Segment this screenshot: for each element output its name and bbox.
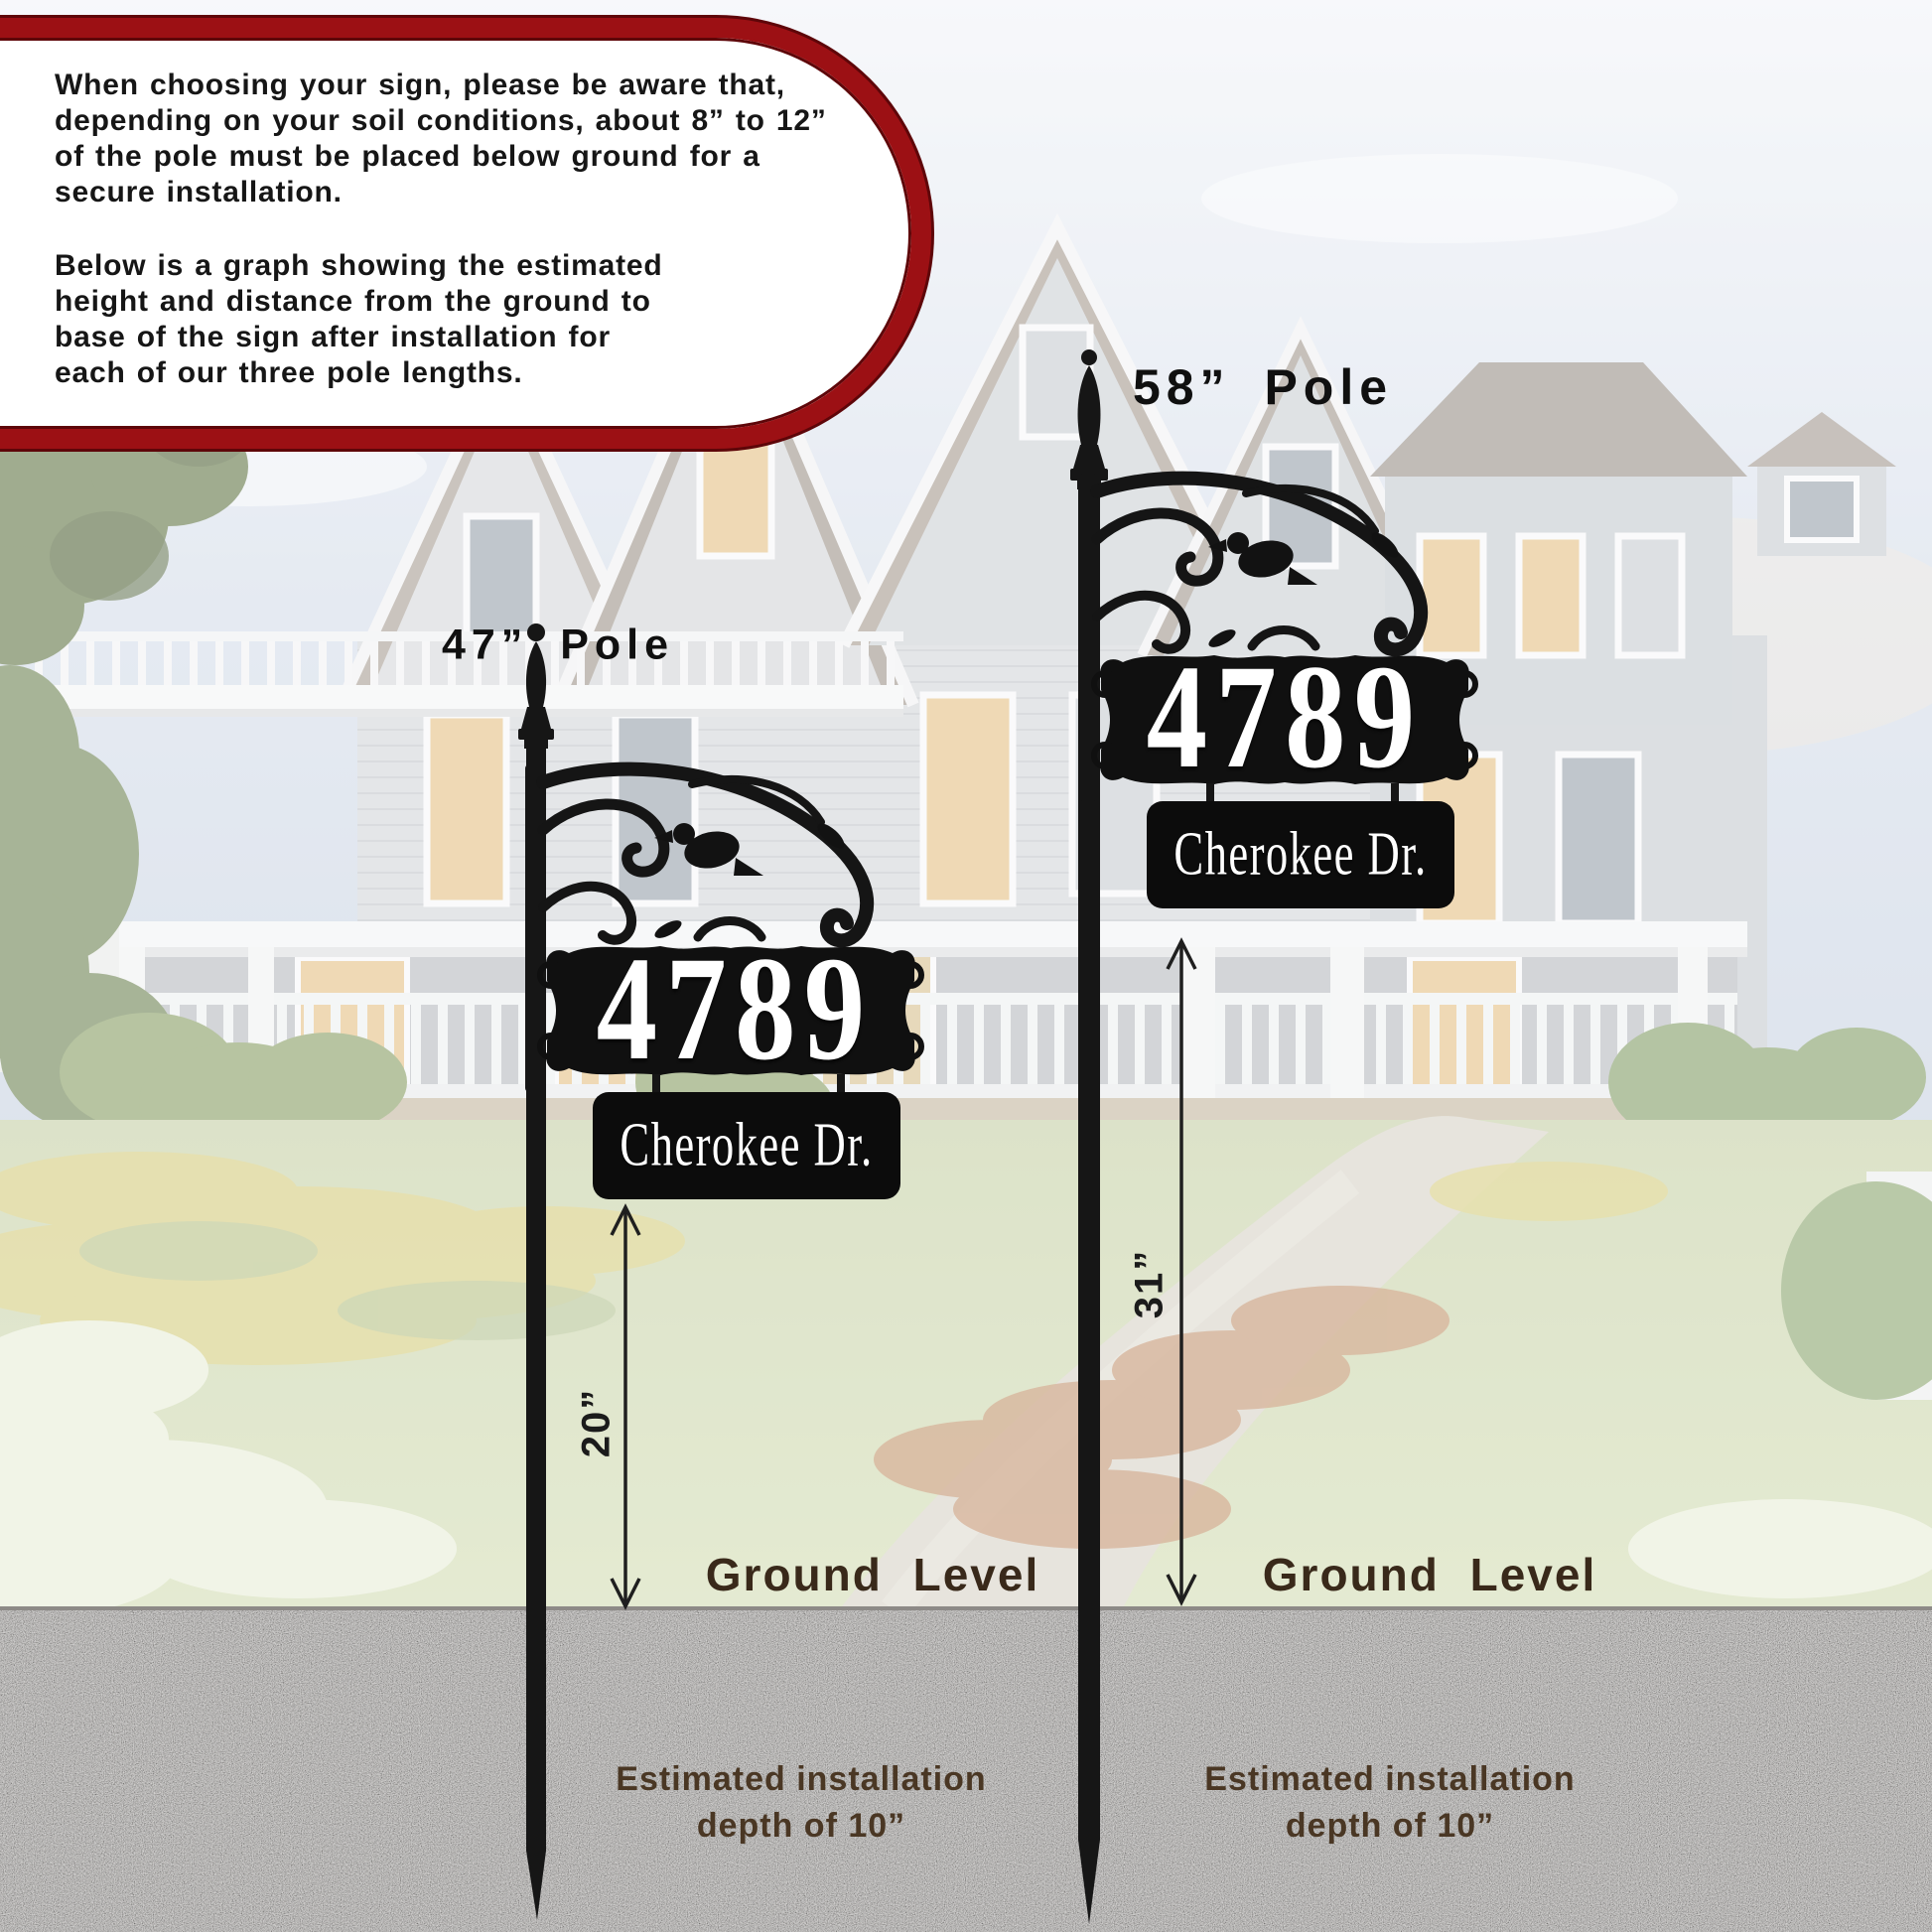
callout-paragraph-2: Below is a graph showing the estimated h… — [55, 248, 872, 391]
house-number-left: 4789 — [597, 923, 874, 1094]
street-name-left: Cherokee Dr. — [620, 1111, 873, 1181]
ground-level-label-right: Ground Level — [1263, 1548, 1596, 1601]
installation-depth-line1: Estimated installation — [616, 1756, 986, 1803]
installation-depth-right: Estimated installation depth of 10” — [1204, 1756, 1575, 1850]
callout-line: When choosing your sign, please be aware… — [55, 68, 872, 103]
installation-depth-line2: depth of 10” — [616, 1803, 986, 1850]
pole-label-58: 58” Pole — [1133, 358, 1393, 416]
callout-line: Below is a graph showing the estimated — [55, 248, 872, 284]
callout-line: depending on your soil conditions, about… — [55, 103, 872, 139]
callout-line: base of the sign after installation for — [55, 320, 872, 355]
height-dimension-left: 20” — [575, 1388, 620, 1458]
installation-depth-line1: Estimated installation — [1204, 1756, 1575, 1803]
callout-line: secure installation. — [55, 175, 872, 210]
street-name-right: Cherokee Dr. — [1173, 820, 1427, 891]
callout-line: height and distance from the ground to — [55, 284, 872, 320]
pole-label-47: 47” Pole — [442, 621, 674, 670]
house-number-right: 4789 — [1147, 631, 1424, 802]
installation-depth-line2: depth of 10” — [1204, 1803, 1575, 1850]
callout-line: each of our three pole lengths. — [55, 355, 872, 391]
ground-level-label-left: Ground Level — [706, 1548, 1039, 1601]
callout-line: of the pole must be placed below ground … — [55, 139, 872, 175]
address-sign-infographic: When choosing your sign, please be aware… — [0, 0, 1932, 1932]
installation-depth-left: Estimated installation depth of 10” — [616, 1756, 986, 1850]
callout-paragraph-1: When choosing your sign, please be aware… — [55, 68, 872, 210]
callout-box: When choosing your sign, please be aware… — [0, 18, 931, 449]
height-dimension-right: 31” — [1128, 1249, 1173, 1319]
